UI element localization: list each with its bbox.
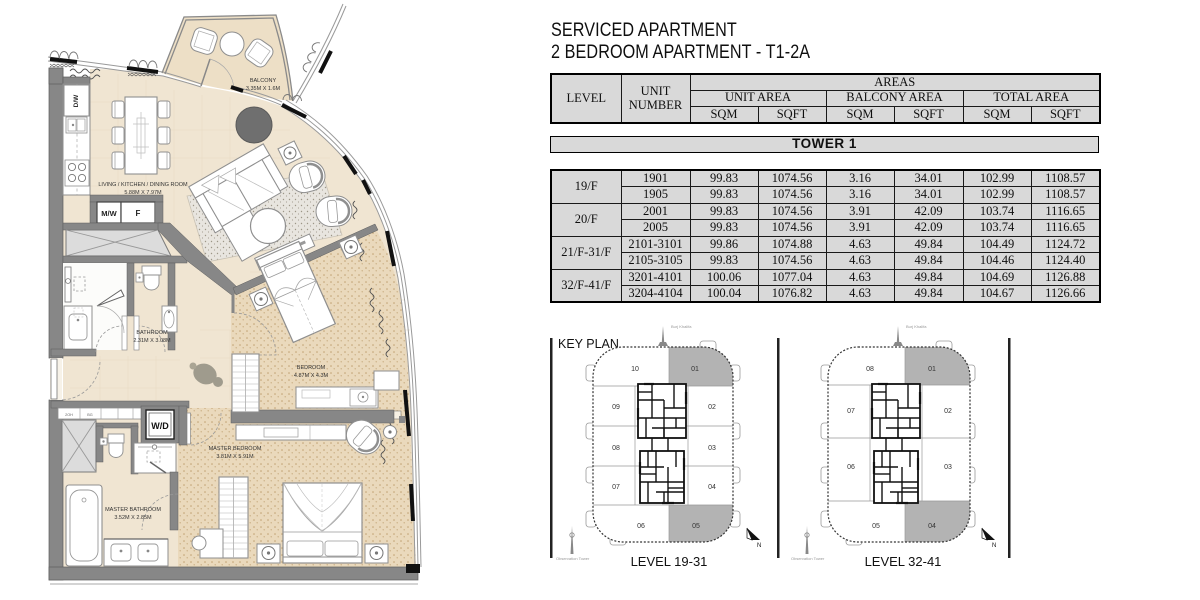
svg-text:07: 07	[847, 408, 855, 415]
svg-text:10: 10	[631, 366, 639, 373]
svg-text:BEDROOM: BEDROOM	[297, 365, 326, 371]
svg-text:3.52M X 2.85M: 3.52M X 2.85M	[114, 515, 152, 521]
svg-text:09: 09	[612, 404, 620, 411]
svg-text:N: N	[757, 543, 761, 549]
svg-text:BATHROOM: BATHROOM	[136, 330, 168, 336]
svg-text:06: 06	[637, 523, 645, 530]
svg-text:N: N	[992, 543, 996, 549]
svg-text:01: 01	[928, 366, 936, 373]
svg-text:Observation Tower: Observation Tower	[556, 556, 590, 561]
svg-text:4.87M X 4.3M: 4.87M X 4.3M	[294, 373, 329, 379]
svg-text:M/W: M/W	[101, 209, 117, 218]
svg-text:MASTER BATHROOM: MASTER BATHROOM	[105, 507, 161, 513]
svg-text:BG: BG	[87, 413, 93, 417]
svg-text:02: 02	[944, 408, 952, 415]
svg-text:F: F	[136, 209, 141, 218]
svg-text:04: 04	[708, 484, 716, 491]
svg-text:2OH: 2OH	[65, 413, 73, 417]
svg-text:W/D: W/D	[151, 421, 169, 431]
svg-text:BALCONY: BALCONY	[250, 78, 277, 84]
svg-text:05: 05	[872, 523, 880, 530]
svg-text:03: 03	[708, 445, 716, 452]
svg-text:LEVEL 19-31: LEVEL 19-31	[631, 554, 708, 569]
svg-text:MASTER BEDROOM: MASTER BEDROOM	[209, 446, 262, 452]
svg-text:Burj Khalifa: Burj Khalifa	[671, 324, 692, 329]
svg-text:06: 06	[847, 464, 855, 471]
svg-text:05: 05	[692, 523, 700, 530]
svg-text:03: 03	[944, 464, 952, 471]
svg-text:3.35M X 1.6M: 3.35M X 1.6M	[246, 86, 281, 92]
svg-text:LEVEL 32-41: LEVEL 32-41	[865, 554, 942, 569]
svg-text:01: 01	[691, 366, 699, 373]
svg-text:Observation Tower: Observation Tower	[791, 556, 825, 561]
svg-text:2.31M X 3.08M: 2.31M X 3.08M	[133, 338, 171, 344]
svg-text:5.88M X 7.97M: 5.88M X 7.97M	[124, 190, 162, 196]
svg-text:LIVING / KITCHEN / DINING ROOM: LIVING / KITCHEN / DINING ROOM	[98, 182, 188, 188]
svg-text:08: 08	[866, 366, 874, 373]
svg-text:Burj Khalifa: Burj Khalifa	[906, 324, 927, 329]
svg-text:KEY PLAN: KEY PLAN	[558, 337, 619, 351]
svg-text:3.81M X 5.91M: 3.81M X 5.91M	[216, 454, 254, 460]
svg-text:07: 07	[612, 484, 620, 491]
svg-text:D/W: D/W	[73, 94, 80, 108]
svg-text:02: 02	[708, 404, 716, 411]
svg-text:04: 04	[928, 523, 936, 530]
svg-text:08: 08	[612, 445, 620, 452]
